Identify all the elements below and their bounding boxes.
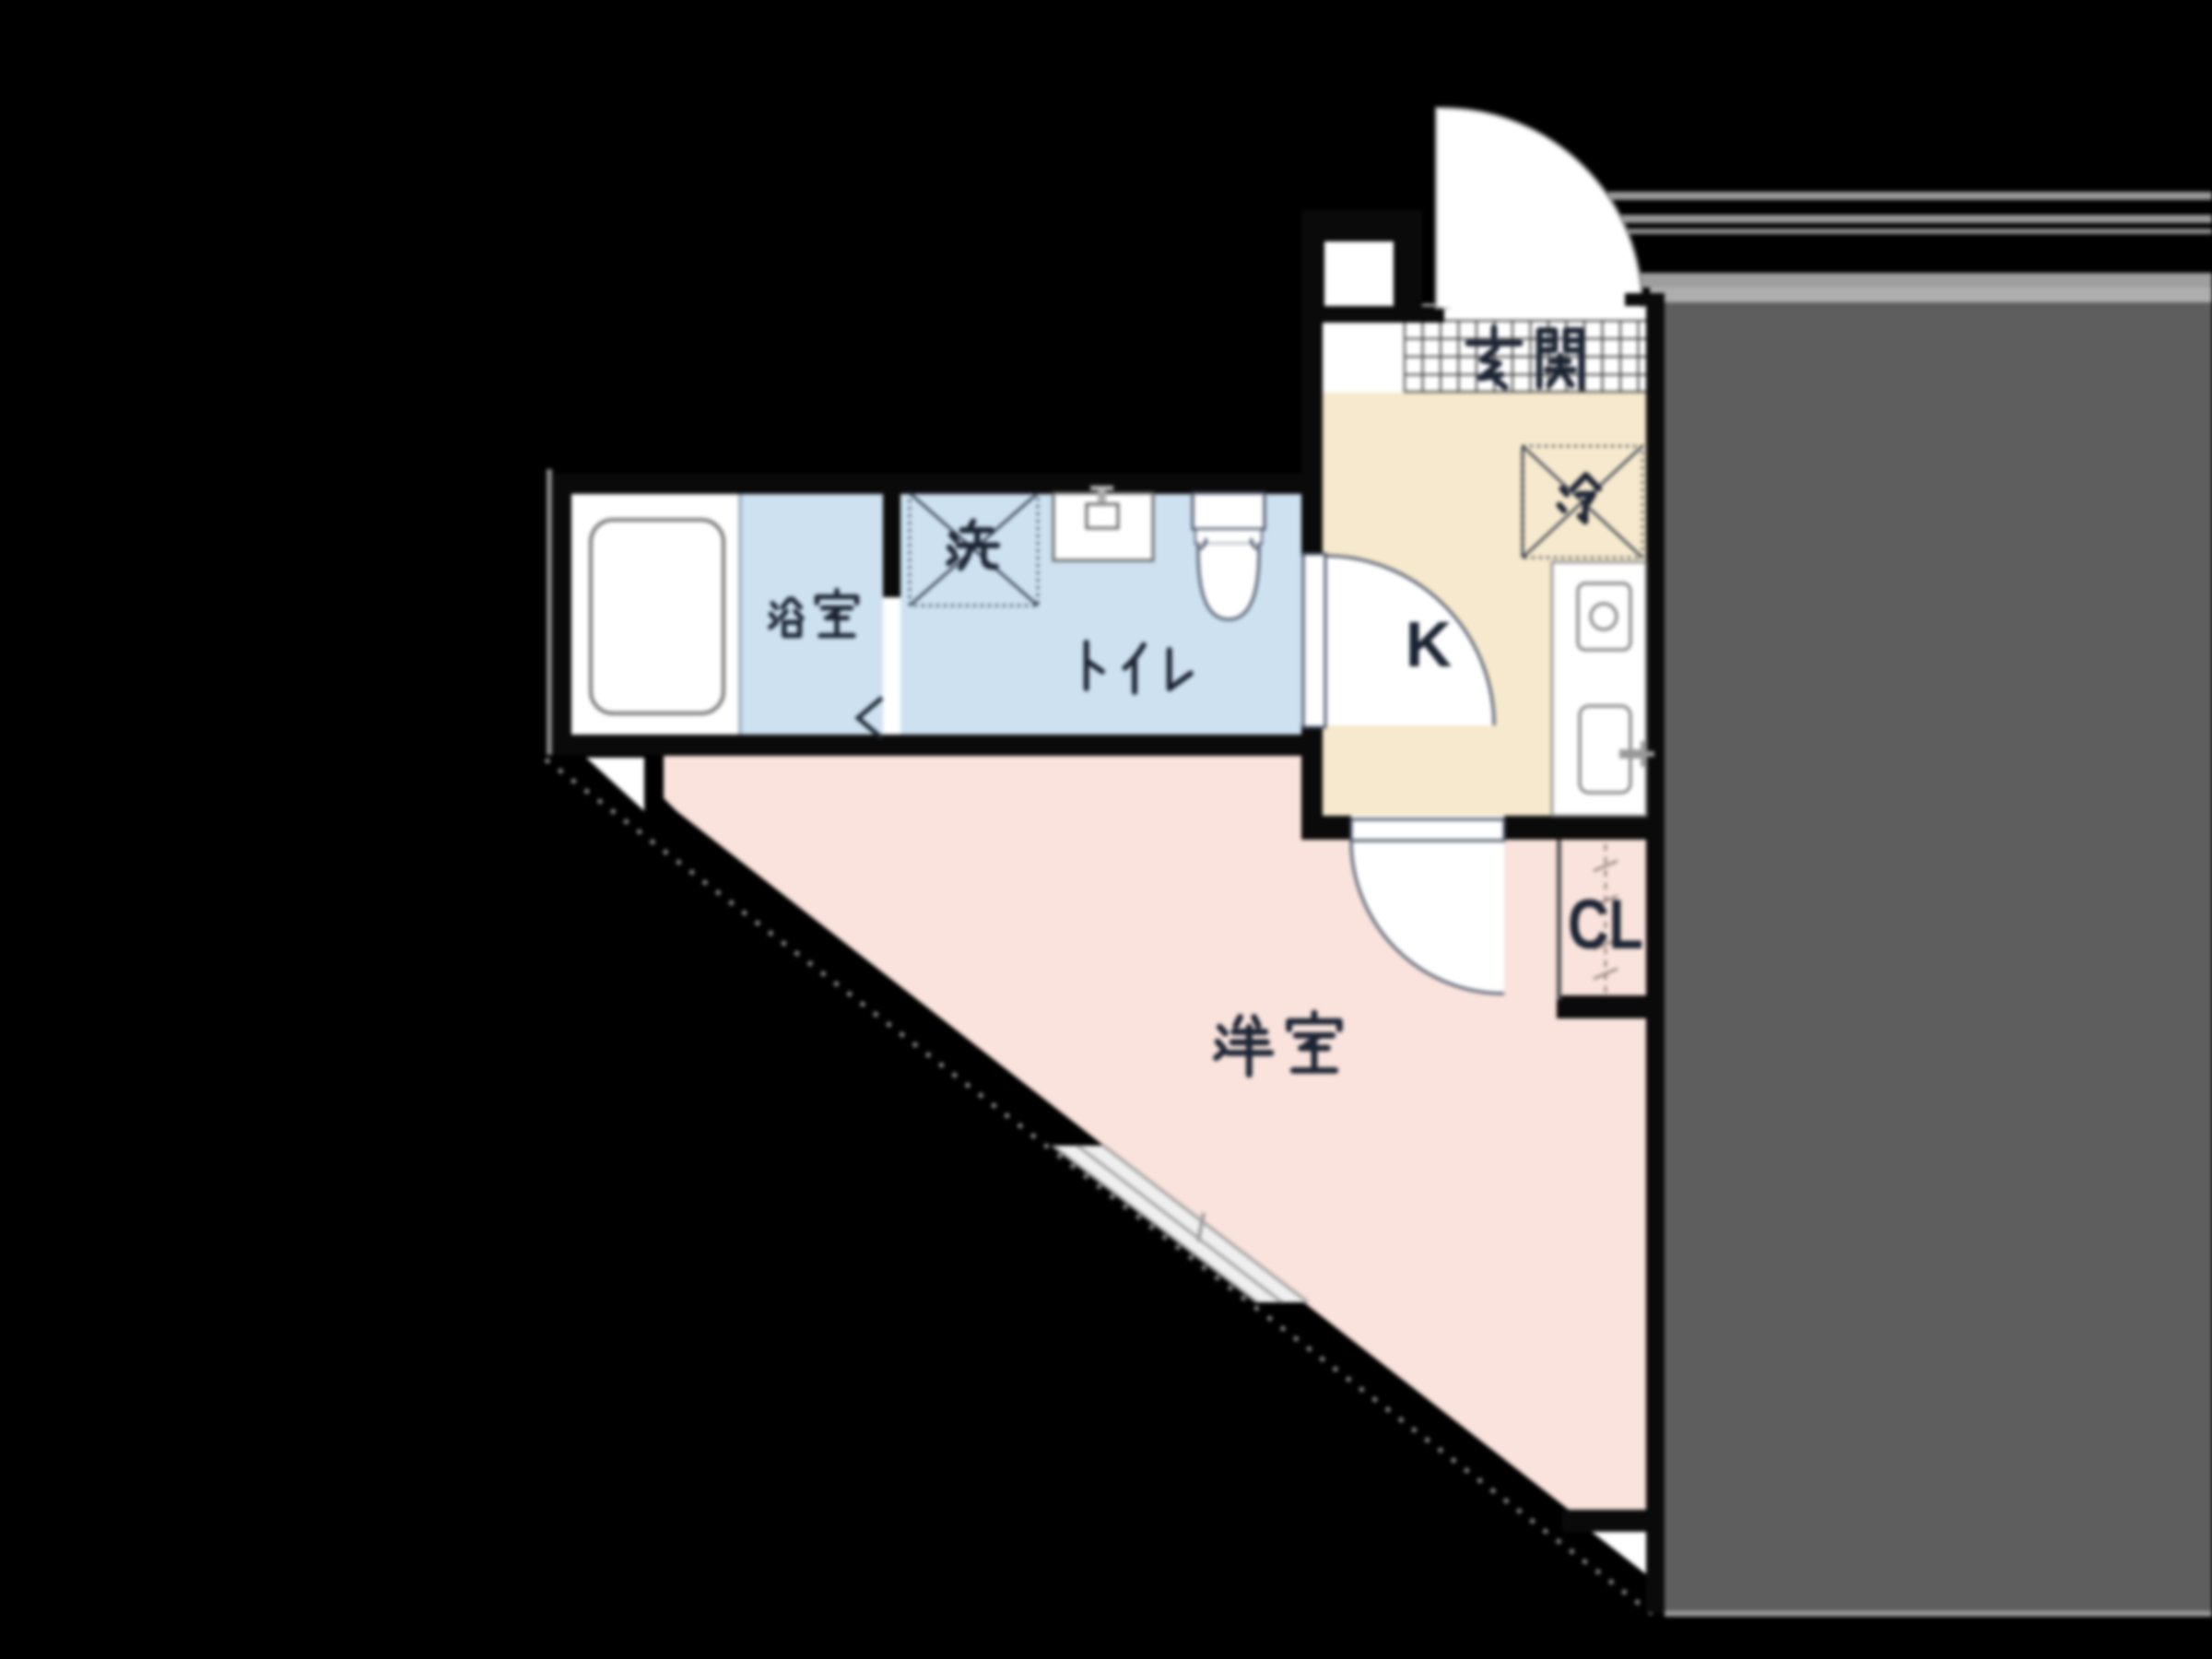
svg-text:K: K — [1406, 608, 1453, 680]
svg-text:CL: CL — [1568, 886, 1643, 964]
